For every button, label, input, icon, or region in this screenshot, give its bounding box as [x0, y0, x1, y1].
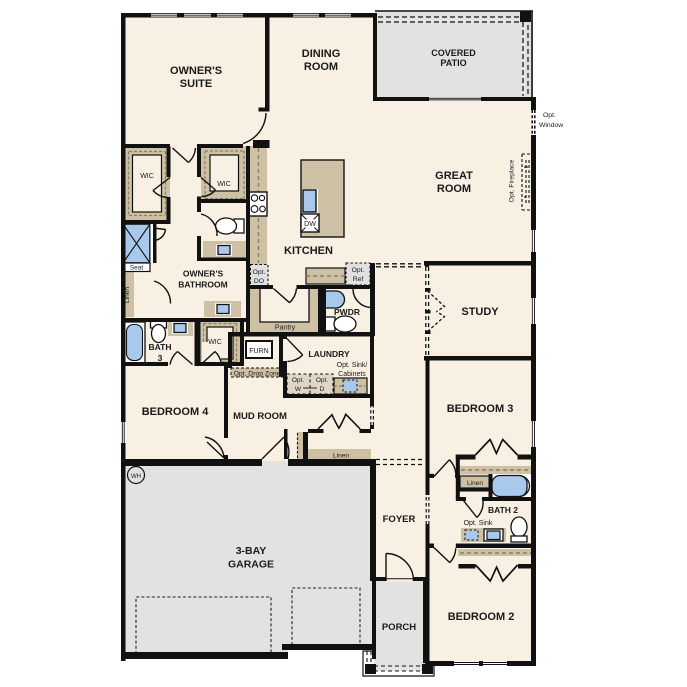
- svg-text:Opt.: Opt.: [316, 377, 328, 384]
- svg-text:COVERED: COVERED: [431, 48, 476, 58]
- svg-text:WIC: WIC: [140, 173, 154, 180]
- svg-text:BATHROOM: BATHROOM: [178, 280, 227, 290]
- svg-text:Opt. Drop Zone: Opt. Drop Zone: [234, 371, 281, 378]
- svg-text:Opt.: Opt.: [543, 112, 556, 119]
- svg-text:BEDROOM 4: BEDROOM 4: [142, 406, 210, 418]
- svg-text:Window: Window: [539, 122, 563, 129]
- svg-text:Opt. Fireplace: Opt. Fireplace: [509, 159, 516, 202]
- svg-text:MUD ROOM: MUD ROOM: [233, 411, 287, 422]
- svg-text:WIC: WIC: [217, 181, 231, 188]
- svg-text:GREAT: GREAT: [435, 170, 473, 182]
- svg-text:3-BAY: 3-BAY: [236, 545, 267, 557]
- svg-text:STUDY: STUDY: [461, 306, 499, 318]
- svg-text:WH: WH: [131, 474, 141, 480]
- svg-text:BEDROOM 3: BEDROOM 3: [447, 403, 514, 415]
- svg-text:Opt.: Opt.: [352, 267, 365, 274]
- svg-text:PORCH: PORCH: [382, 622, 416, 633]
- svg-text:Opt.: Opt.: [292, 377, 304, 384]
- svg-text:Seat: Seat: [130, 265, 144, 272]
- svg-text:D: D: [320, 386, 325, 393]
- svg-text:Linen: Linen: [333, 453, 349, 460]
- svg-text:3: 3: [158, 353, 163, 363]
- svg-text:BEDROOM 2: BEDROOM 2: [448, 611, 515, 623]
- svg-text:Opt. Sink: Opt. Sink: [464, 520, 493, 527]
- svg-text:Pantry: Pantry: [275, 325, 296, 332]
- svg-text:ROOM: ROOM: [437, 183, 471, 195]
- svg-text:FOYER: FOYER: [383, 514, 416, 525]
- svg-text:Cabinets: Cabinets: [338, 371, 366, 378]
- svg-text:DINING: DINING: [302, 48, 341, 60]
- svg-text:BATH: BATH: [149, 342, 172, 352]
- svg-text:SUITE: SUITE: [180, 78, 212, 90]
- svg-text:PWDR: PWDR: [334, 307, 360, 317]
- svg-text:Opt. Sink/: Opt. Sink/: [337, 362, 368, 369]
- svg-text:Opt.: Opt.: [253, 269, 266, 276]
- svg-text:DW: DW: [304, 221, 316, 228]
- svg-text:FURN: FURN: [249, 348, 268, 355]
- svg-text:DO: DO: [254, 278, 264, 285]
- svg-text:PATIO: PATIO: [440, 58, 466, 68]
- svg-text:ROOM: ROOM: [304, 61, 338, 73]
- svg-text:LAUNDRY: LAUNDRY: [308, 349, 350, 359]
- svg-text:BATH 2: BATH 2: [488, 505, 518, 515]
- svg-text:GARAGE: GARAGE: [228, 559, 274, 571]
- svg-text:OWNER'S: OWNER'S: [170, 65, 222, 77]
- svg-text:WIC: WIC: [208, 339, 222, 346]
- svg-text:Linen: Linen: [467, 480, 483, 487]
- svg-text:Ref: Ref: [353, 276, 364, 283]
- svg-text:KITCHEN: KITCHEN: [284, 245, 333, 257]
- svg-text:OWNER'S: OWNER'S: [183, 269, 224, 279]
- svg-text:W: W: [295, 386, 302, 393]
